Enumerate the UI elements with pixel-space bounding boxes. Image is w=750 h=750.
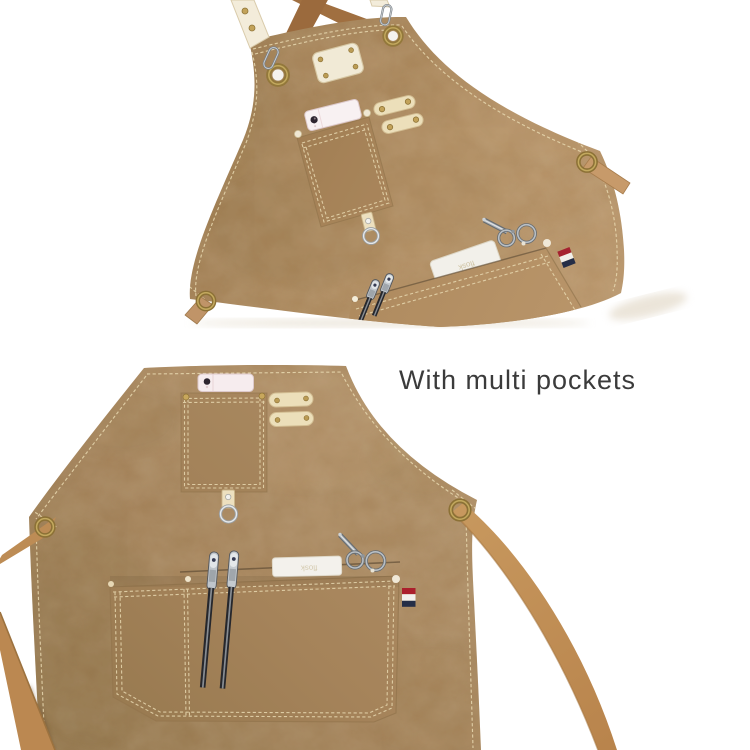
svg-text:flosk: flosk bbox=[300, 563, 318, 572]
svg-text:With multi pockets: With multi pockets bbox=[399, 365, 636, 395]
